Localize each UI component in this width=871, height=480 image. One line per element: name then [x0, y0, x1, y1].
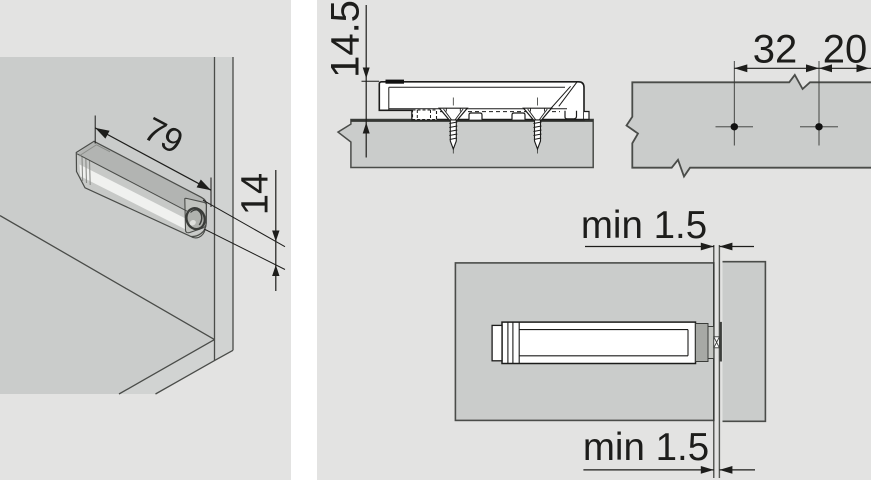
svg-text:min 1.5: min 1.5 [583, 426, 709, 469]
svg-text:14: 14 [235, 173, 277, 215]
svg-text:min 1.5: min 1.5 [581, 204, 707, 247]
svg-text:14.5: 14.5 [324, 0, 368, 78]
svg-text:20: 20 [823, 28, 868, 72]
svg-text:32: 32 [753, 28, 798, 72]
